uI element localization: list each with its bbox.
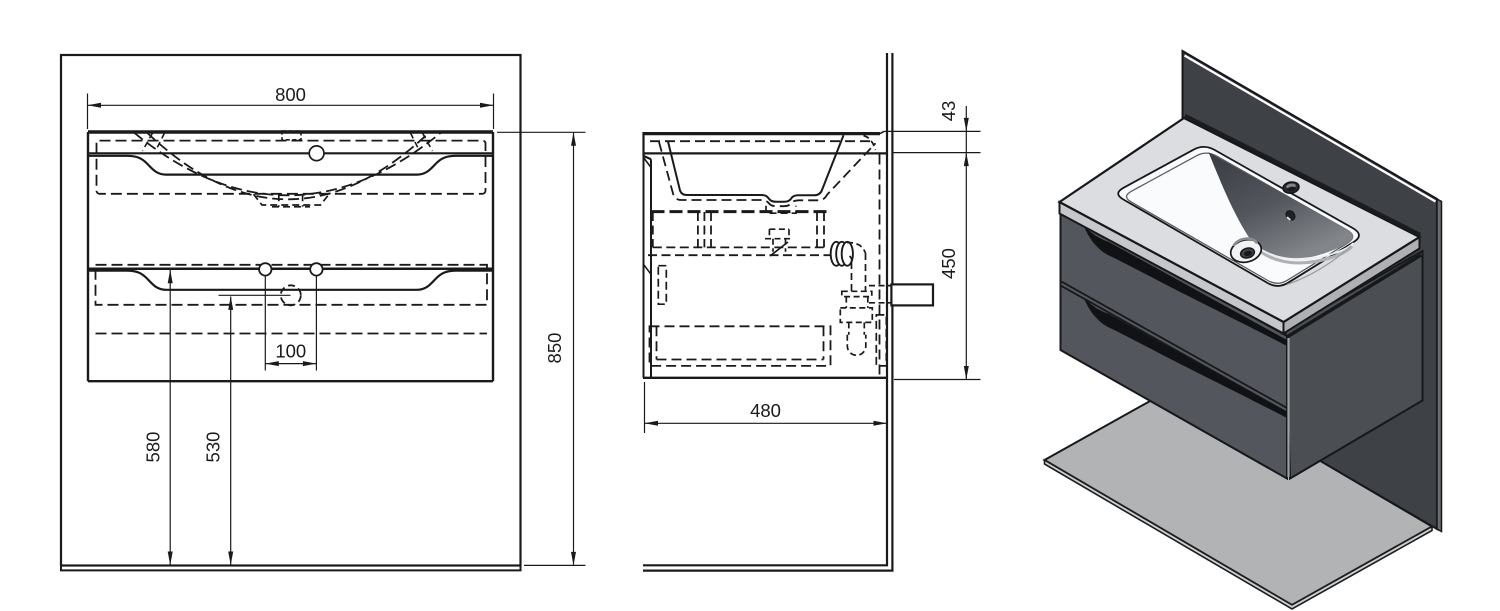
svg-text:580: 580	[143, 432, 164, 463]
svg-text:800: 800	[275, 84, 306, 105]
svg-text:43: 43	[938, 101, 959, 122]
svg-text:100: 100	[275, 341, 306, 362]
svg-text:530: 530	[203, 432, 224, 463]
svg-text:480: 480	[750, 400, 781, 421]
svg-text:850: 850	[544, 333, 565, 364]
svg-text:450: 450	[938, 248, 959, 279]
